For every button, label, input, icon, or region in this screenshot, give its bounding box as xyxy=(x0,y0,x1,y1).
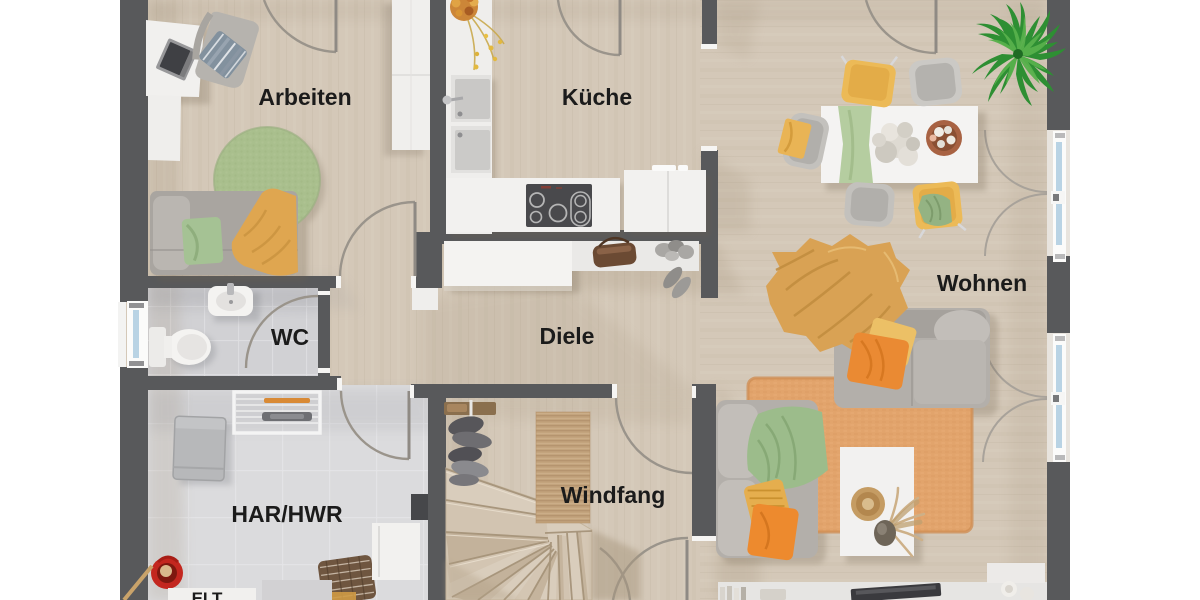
svg-text:Arbeiten: Arbeiten xyxy=(258,84,351,110)
svg-text:ELT: ELT xyxy=(192,589,223,600)
svg-text:Wohnen: Wohnen xyxy=(937,270,1027,296)
svg-text:WC: WC xyxy=(271,324,309,350)
svg-text:Windfang: Windfang xyxy=(561,482,666,508)
svg-text:HAR/HWR: HAR/HWR xyxy=(231,501,343,527)
svg-text:Diele: Diele xyxy=(540,323,595,349)
svg-text:Küche: Küche xyxy=(562,84,632,110)
